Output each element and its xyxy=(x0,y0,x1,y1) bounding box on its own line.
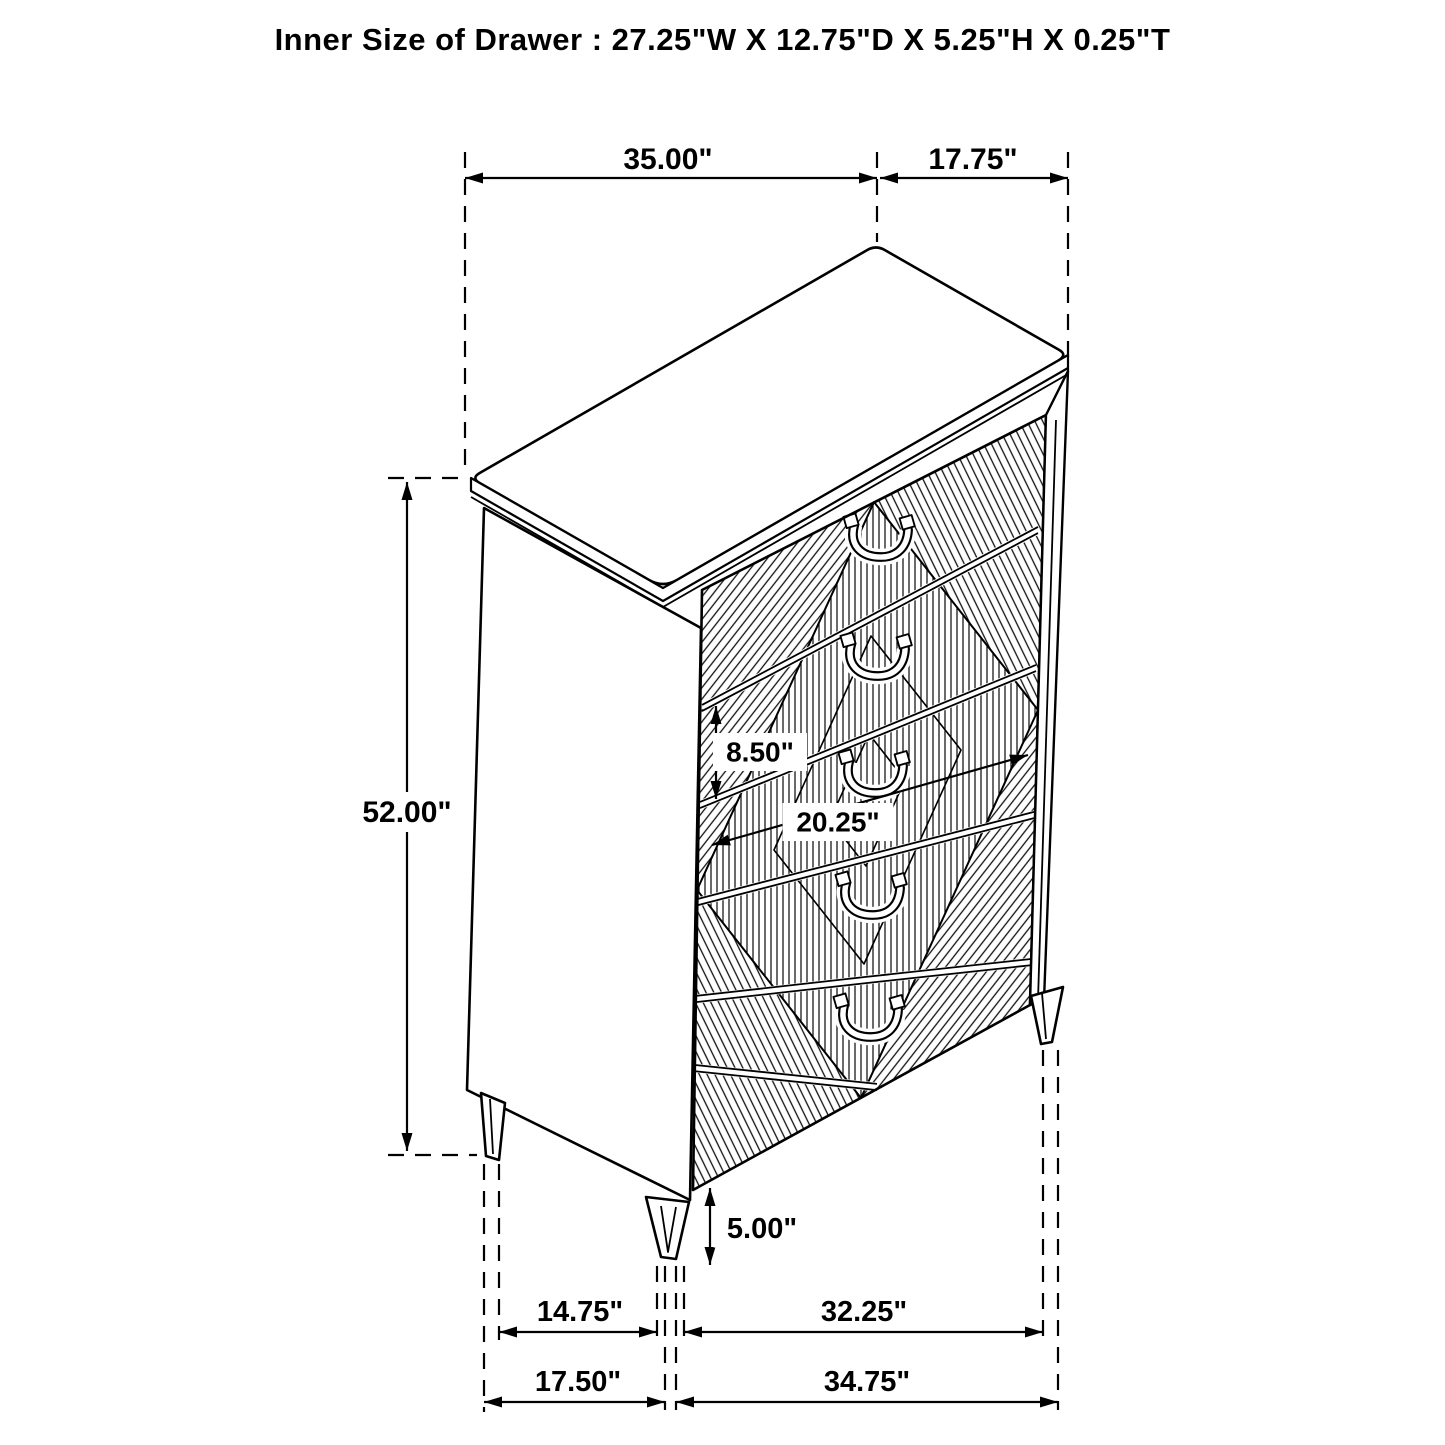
dimension-label-base-width-inner: 32.25" xyxy=(821,1296,907,1328)
chest-left-panel xyxy=(467,508,701,1200)
dimension-arrow-base-depth xyxy=(647,1397,665,1408)
dimension-label-height: 52.00" xyxy=(362,796,451,829)
front-right-leg xyxy=(1031,987,1063,1044)
dimension-arrow-base-width-inner xyxy=(1025,1327,1043,1338)
dimension-label-drawer-width: 20.25" xyxy=(796,807,879,838)
dimension-arrow-leg-height xyxy=(705,1247,716,1265)
dimension-label-top-depth: 17.75" xyxy=(928,143,1017,176)
dimension-label-base-width: 34.75" xyxy=(824,1366,910,1398)
dimension-arrow-base-depth-inner xyxy=(639,1327,657,1338)
dimension-arrow-base-width-inner xyxy=(684,1327,702,1338)
dimension-arrow-top-depth xyxy=(1050,173,1068,184)
dimension-label-top-width: 35.00" xyxy=(623,143,712,176)
dimension-label-base-depth-inner: 14.75" xyxy=(537,1296,623,1328)
dimension-label-base-depth: 17.50" xyxy=(535,1366,621,1398)
dimension-arrow-base-width xyxy=(676,1397,694,1408)
dimension-diagram: Inner Size of Drawer : 27.25"W X 12.75"D… xyxy=(0,0,1445,1445)
dimension-arrow-height xyxy=(402,482,413,500)
dimension-arrow-top-width xyxy=(859,173,877,184)
dimension-arrow-leg-height xyxy=(705,1188,716,1206)
dimension-arrow-top-width xyxy=(465,173,483,184)
dimension-arrow-base-width xyxy=(1040,1397,1058,1408)
dimension-label-leg-height: 5.00" xyxy=(727,1213,797,1245)
chest-line-drawing: 35.00"17.75"52.00"8.50"20.25"5.00"14.75"… xyxy=(0,0,1445,1445)
dimension-arrow-base-depth-inner xyxy=(499,1327,517,1338)
dimension-arrow-height xyxy=(402,1133,413,1151)
dimension-arrow-base-depth xyxy=(484,1397,502,1408)
dimension-arrow-top-depth xyxy=(880,173,898,184)
dimension-label-drawer-height: 8.50" xyxy=(726,737,794,768)
